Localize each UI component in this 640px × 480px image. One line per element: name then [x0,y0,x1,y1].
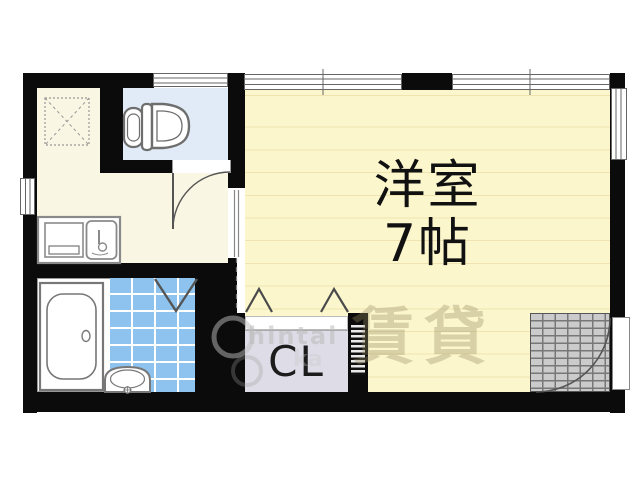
wall [228,88,245,188]
wall [228,258,237,313]
wall [23,73,37,413]
entrance-door-opening [612,317,630,390]
room-label: 洋室 7帖 [330,157,525,273]
room-size: 7帖 [330,215,525,273]
window-icon [153,73,228,87]
bathroom-tile-floor [110,278,195,392]
wall [23,263,195,278]
window-icon [611,88,627,160]
wall [195,263,228,392]
window-icon [20,178,35,215]
wall [23,392,625,412]
wall [100,160,173,173]
entrance-tile-floor [530,313,610,392]
wall [228,73,245,88]
floor-plan: CL [0,0,640,480]
watermark-text: hintai [248,322,338,350]
wall [228,313,245,392]
room-name: 洋室 [330,157,525,215]
toilet-door-opening [172,160,231,173]
wall [100,88,123,160]
window-icon [244,74,402,90]
wall [23,73,154,88]
wall [402,73,452,90]
watermark-text: ka [293,347,322,372]
watermark-cjk-text: 賃貸 [352,306,496,368]
toilet-room-floor [123,88,228,160]
window-icon [452,74,610,90]
hallway-floor [37,160,230,263]
